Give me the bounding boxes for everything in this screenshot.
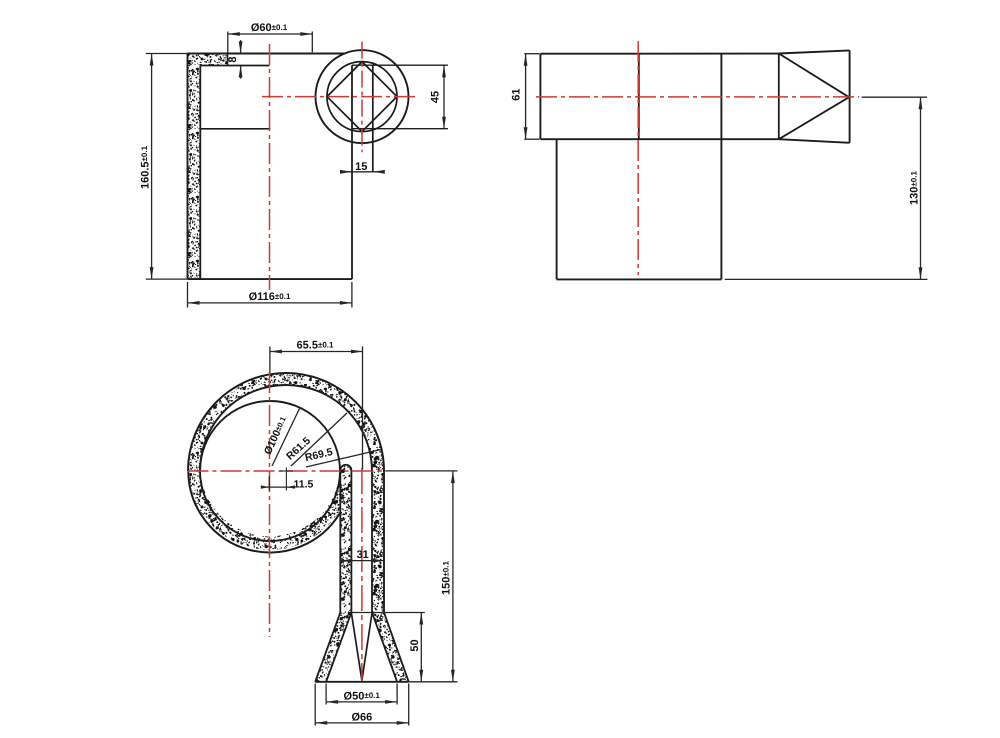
- svg-text:31: 31: [357, 549, 369, 561]
- svg-text:11.5: 11.5: [294, 479, 314, 491]
- svg-text:61: 61: [510, 88, 522, 100]
- svg-text:50: 50: [409, 639, 421, 651]
- svg-text:15: 15: [355, 161, 367, 173]
- svg-text:45: 45: [430, 91, 442, 103]
- svg-text:8: 8: [227, 56, 239, 62]
- svg-text:Ø66: Ø66: [352, 711, 373, 723]
